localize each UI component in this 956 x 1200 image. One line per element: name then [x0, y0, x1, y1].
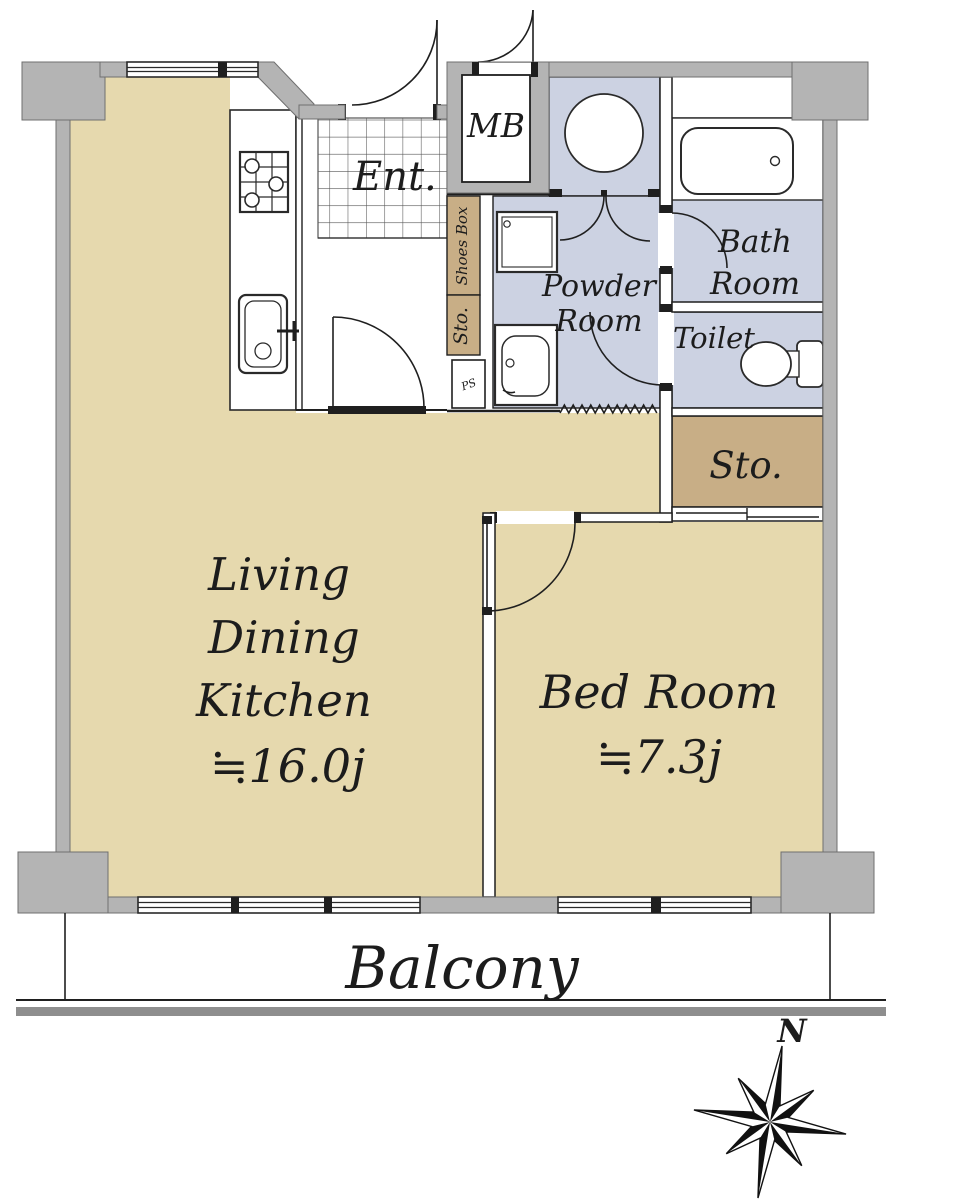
pillar-bottom-right: [781, 852, 874, 913]
right-wall: [823, 120, 837, 852]
shoe-storage-label: Sto.: [450, 307, 472, 345]
powder-room-label-1: Powder: [541, 269, 658, 304]
toilet-door-opening: [658, 312, 674, 385]
balcony-rail: [16, 1007, 886, 1016]
shoes-box-label: Shoes Box: [453, 206, 471, 285]
floor-plan-page: Ent. MB Shoes Box Sto. PS Powder Room Ba…: [0, 0, 956, 1200]
vanity-basin-icon: [495, 325, 557, 405]
stove-icon: [240, 152, 288, 212]
bathtub-icon: [681, 128, 793, 194]
hallway-door: [333, 317, 424, 408]
window-bedroom: [558, 897, 751, 913]
pillar-bottom-left: [18, 852, 108, 913]
ldk-bedroom-partition: [483, 513, 495, 897]
ldk-label-3: Kitchen: [195, 674, 372, 727]
wash-basin-icon: [497, 212, 557, 272]
bath-room-label-2: Room: [709, 266, 800, 302]
pillar-top-right: [792, 62, 868, 120]
compass-star-outline: [682, 1034, 858, 1200]
bath-room-label-1: Bath: [717, 224, 792, 260]
window-top: [127, 62, 258, 77]
bedroom-door-opening: [496, 511, 574, 524]
floor-plan-svg: Ent. MB Shoes Box Sto. PS Powder Room Ba…: [0, 0, 956, 1200]
ldk-label-1: Living: [207, 548, 350, 601]
meter-box-label: MB: [466, 106, 525, 145]
powder-room-label-2: Room: [554, 304, 642, 339]
meter-box-door: [478, 10, 533, 62]
entrance-door: [338, 20, 441, 120]
window-ldk: [138, 897, 420, 913]
storage-sliding-door: [672, 507, 823, 521]
storage-label: Sto.: [709, 444, 783, 487]
bath-door-opening: [658, 213, 674, 268]
balcony-label: Balcony: [344, 934, 580, 1002]
pillar-top-left: [22, 62, 105, 120]
bedroom-area-label: ≒7.3j: [596, 730, 722, 784]
entrance-label: Ent.: [352, 154, 437, 200]
washing-machine-icon: [565, 94, 643, 172]
accordion-door: [560, 405, 657, 413]
compass-rose: [682, 1034, 858, 1200]
bedroom-label: Bed Room: [539, 665, 779, 719]
compass-north-label: N: [776, 1012, 808, 1050]
ldk-area-label: ≒16.0j: [210, 739, 365, 793]
toilet-label: Toilet: [673, 321, 755, 355]
ldk-label-2: Dining: [207, 611, 360, 664]
left-wall: [56, 120, 70, 852]
